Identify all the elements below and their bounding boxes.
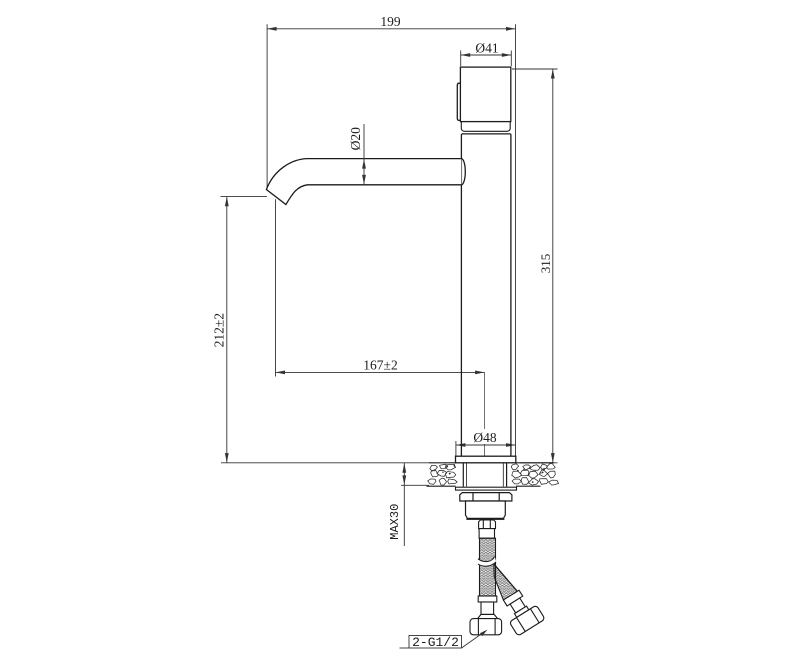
svg-text:315: 315 [538, 254, 553, 274]
svg-text:Ø48: Ø48 [473, 430, 496, 445]
svg-text:Ø41: Ø41 [475, 40, 498, 55]
svg-text:Ø20: Ø20 [348, 127, 363, 150]
svg-text:2-G1/2: 2-G1/2 [412, 635, 459, 650]
svg-text:212±2: 212±2 [212, 313, 227, 347]
svg-text:167±2: 167±2 [363, 357, 397, 372]
svg-text:MAX30: MAX30 [388, 504, 402, 540]
svg-text:199: 199 [380, 14, 401, 29]
